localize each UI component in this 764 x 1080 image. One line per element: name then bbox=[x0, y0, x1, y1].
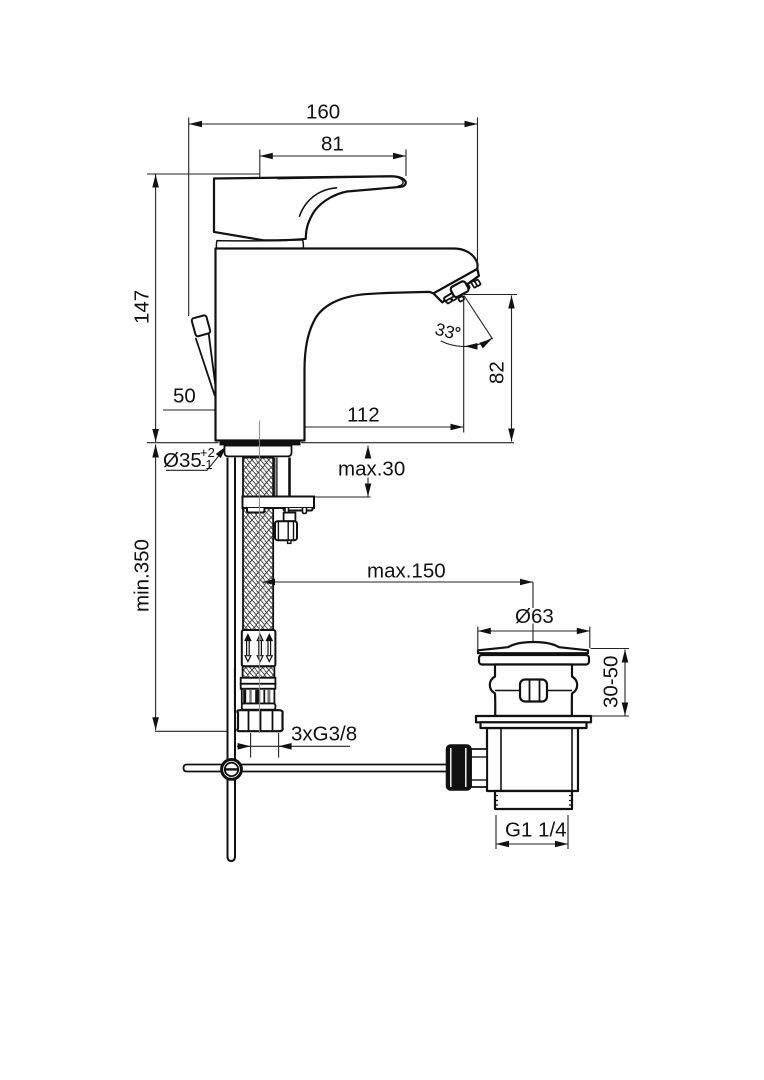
svg-text:82: 82 bbox=[486, 361, 509, 384]
svg-text:50: 50 bbox=[173, 385, 196, 408]
svg-text:Ø35: Ø35 bbox=[163, 449, 202, 472]
svg-text:max.30: max.30 bbox=[338, 458, 405, 481]
svg-text:160: 160 bbox=[306, 101, 340, 124]
svg-text:147: 147 bbox=[131, 290, 154, 324]
svg-text:81: 81 bbox=[321, 133, 344, 156]
svg-text:3xG3/8: 3xG3/8 bbox=[291, 723, 357, 746]
svg-text:-1: -1 bbox=[201, 457, 213, 472]
svg-text:112: 112 bbox=[347, 404, 380, 427]
svg-text:min.350: min.350 bbox=[131, 539, 154, 612]
svg-text:Ø63: Ø63 bbox=[515, 605, 554, 628]
svg-text:G1 1/4: G1 1/4 bbox=[505, 819, 567, 842]
svg-text:30-50: 30-50 bbox=[600, 656, 623, 708]
svg-text:max.150: max.150 bbox=[367, 560, 446, 583]
